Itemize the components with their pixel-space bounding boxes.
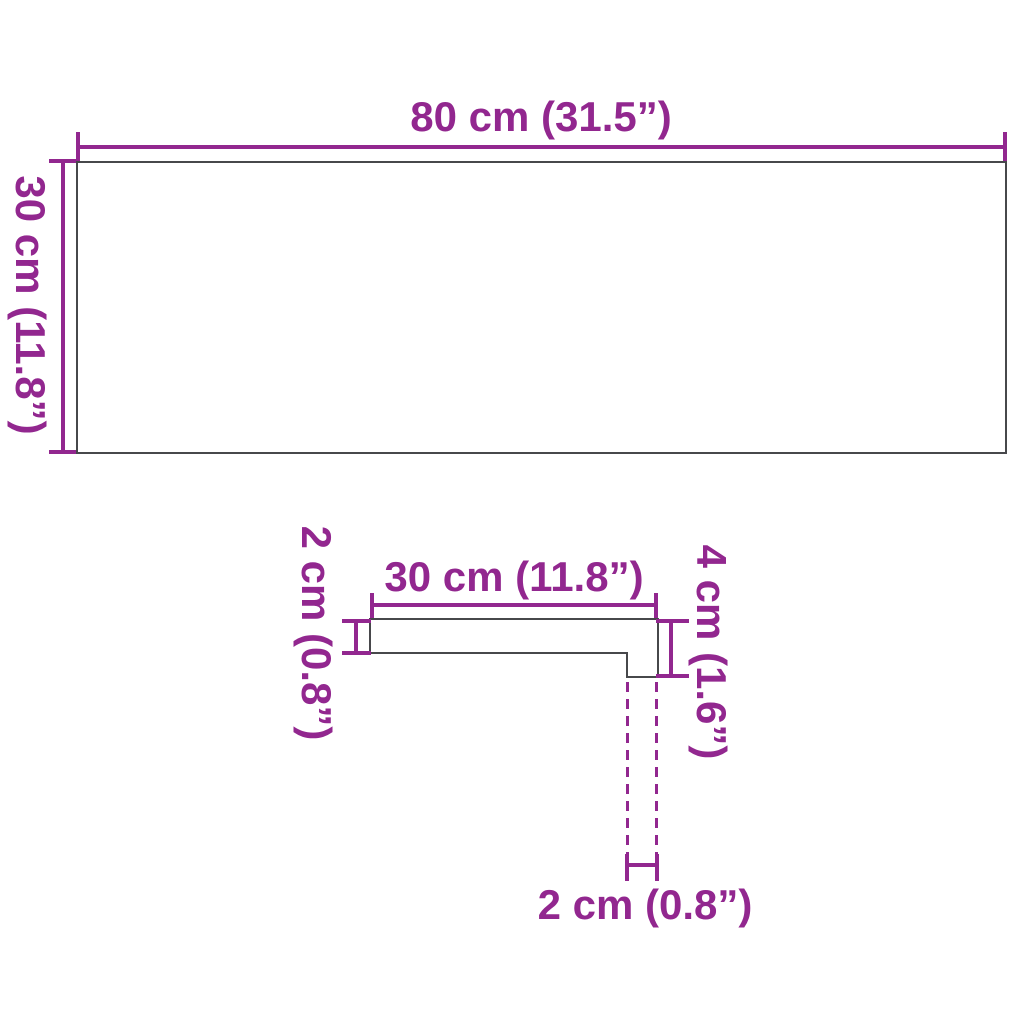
plan-width-dimension-line — [76, 145, 1007, 149]
profile-nose-extension-line-right — [655, 682, 658, 862]
plan-depth-tick-top — [49, 159, 77, 163]
plan-width-tick-right — [1003, 132, 1007, 163]
profile-thickness-dimension-line — [354, 621, 358, 653]
profile-shape — [369, 618, 659, 680]
plan-depth-dimension-line — [61, 161, 65, 454]
profile-nose-width-tick-right — [655, 854, 659, 881]
profile-nose-height-tick-top — [656, 619, 689, 623]
plan-width-label: 80 cm (31.5”) — [410, 96, 671, 138]
profile-thickness-tick-bottom — [342, 651, 371, 655]
profile-nose-width-dimension-line — [625, 863, 659, 867]
profile-nose-width-tick-left — [625, 854, 629, 881]
profile-width-dimension-line — [370, 603, 658, 607]
profile-width-label: 30 cm (11.8”) — [384, 556, 643, 598]
profile-thickness-label: 2 cm (0.8”) — [295, 526, 337, 741]
profile-nose-extension-line-left — [626, 682, 629, 862]
profile-thickness-tick-top — [342, 619, 371, 623]
plan-depth-tick-bottom — [49, 450, 77, 454]
dimension-diagram: 80 cm (31.5”) 30 cm (11.8”) 30 cm (11.8”… — [0, 0, 1024, 1024]
plan-rectangle — [76, 161, 1007, 454]
plan-depth-label: 30 cm (11.8”) — [9, 175, 51, 434]
profile-nose-width-label: 2 cm (0.8”) — [538, 884, 753, 926]
profile-nose-height-dimension-line — [669, 621, 673, 677]
profile-nose-height-tick-bottom — [656, 674, 689, 678]
profile-nose-height-label: 4 cm (1.6”) — [690, 545, 732, 760]
